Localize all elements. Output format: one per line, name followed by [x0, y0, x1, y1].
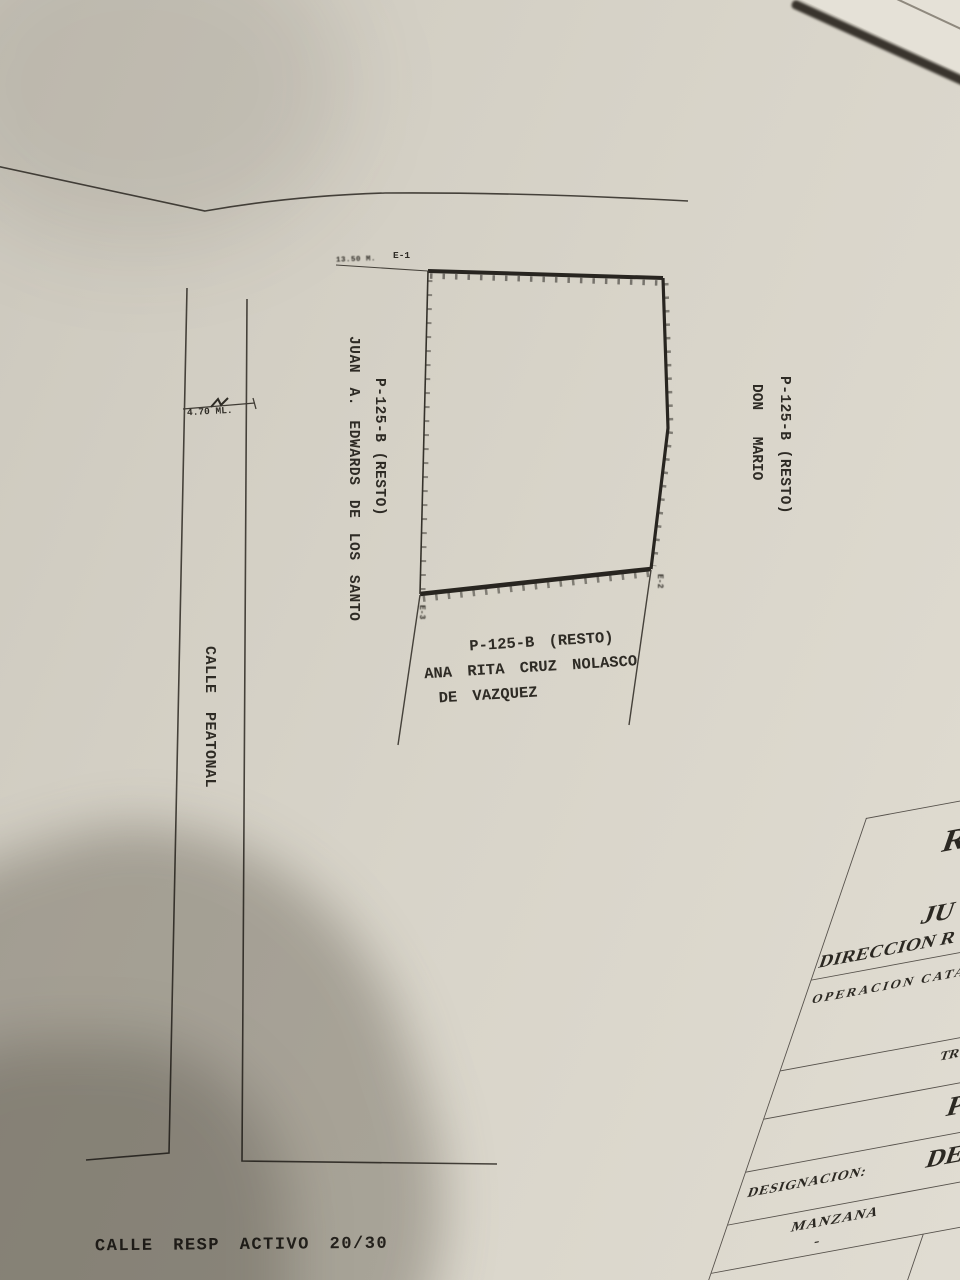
parcel-edge-left: [420, 271, 428, 594]
top-dimension-label: 13.50 M.: [336, 255, 376, 264]
north-boundary-line: [0, 166, 688, 211]
street-left-line: [86, 288, 187, 1160]
dimension-extension-line: [336, 265, 428, 271]
title-block-cell-divider: [900, 1234, 924, 1280]
partial-text-fragment: TR: [937, 1047, 960, 1066]
parcel-south-label-block: P-125-B (RESTO) ANA RITA CRUZ NOLASCO DE…: [422, 626, 664, 708]
title-header-line2: JU: [917, 896, 959, 931]
station-label-e3: E-3: [417, 605, 426, 619]
parcel-hatch-bottom: [422, 574, 649, 599]
parcel-west-owner: JUAN A. EDWARDS DE LOS SANTO: [345, 336, 361, 621]
designacion-label: DESIGNACION:: [745, 1164, 869, 1202]
parcel-east-owner: DON MARIO: [748, 384, 764, 480]
photographed-survey-plan: E-1 13.50 M. 4.70 ML. P-125-B (RESTO) JU…: [0, 0, 960, 1280]
street-right-line: [242, 299, 497, 1164]
parcel-west-id: P-125-B (RESTO): [371, 378, 387, 516]
station-label-e1: E-1: [393, 250, 410, 261]
street-name-label: CALLE PEATONAL: [201, 646, 218, 788]
footer-note: CALLE RESP ACTIVO 20/30: [95, 1235, 388, 1257]
parcel-east-id: P-125-B (RESTO): [776, 376, 792, 514]
parcel-edge-top: [428, 271, 663, 278]
manzana-value: -: [811, 1233, 822, 1251]
title-header-line1: R: [937, 820, 960, 860]
designacion-big-text: DES: [922, 1136, 960, 1175]
station-label-e2: E-2: [655, 574, 664, 588]
parcel-edge-bottom: [420, 569, 651, 594]
parcela-big-letter: P: [942, 1088, 960, 1123]
